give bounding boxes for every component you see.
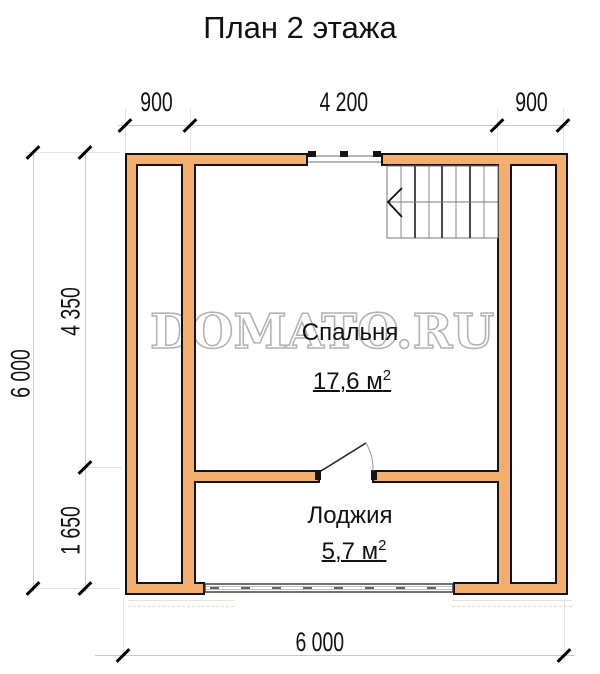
door-leaf xyxy=(321,443,366,471)
stairs xyxy=(387,166,498,238)
window-top xyxy=(308,151,381,162)
window-band-bottom xyxy=(205,584,453,592)
door-jamb xyxy=(315,470,321,480)
door-jamb xyxy=(371,470,377,480)
page-title: План 2 этажа xyxy=(0,9,600,47)
room-name-bedroom: Спальня xyxy=(150,319,550,347)
room-area-loggia: 5,7 м2 xyxy=(154,532,554,566)
window-mullion xyxy=(373,151,381,157)
door-swing-arc xyxy=(366,443,373,471)
room-name-loggia: Лоджия xyxy=(150,502,550,530)
door xyxy=(315,443,377,480)
floor-plan-canvas: План 2 этажа DOMATO.RU 900 4 200 900 6 0… xyxy=(0,0,600,674)
window-mullion xyxy=(340,151,348,157)
window-mullion xyxy=(308,151,316,157)
room-area-bedroom: 17,6 м2 xyxy=(152,362,552,396)
